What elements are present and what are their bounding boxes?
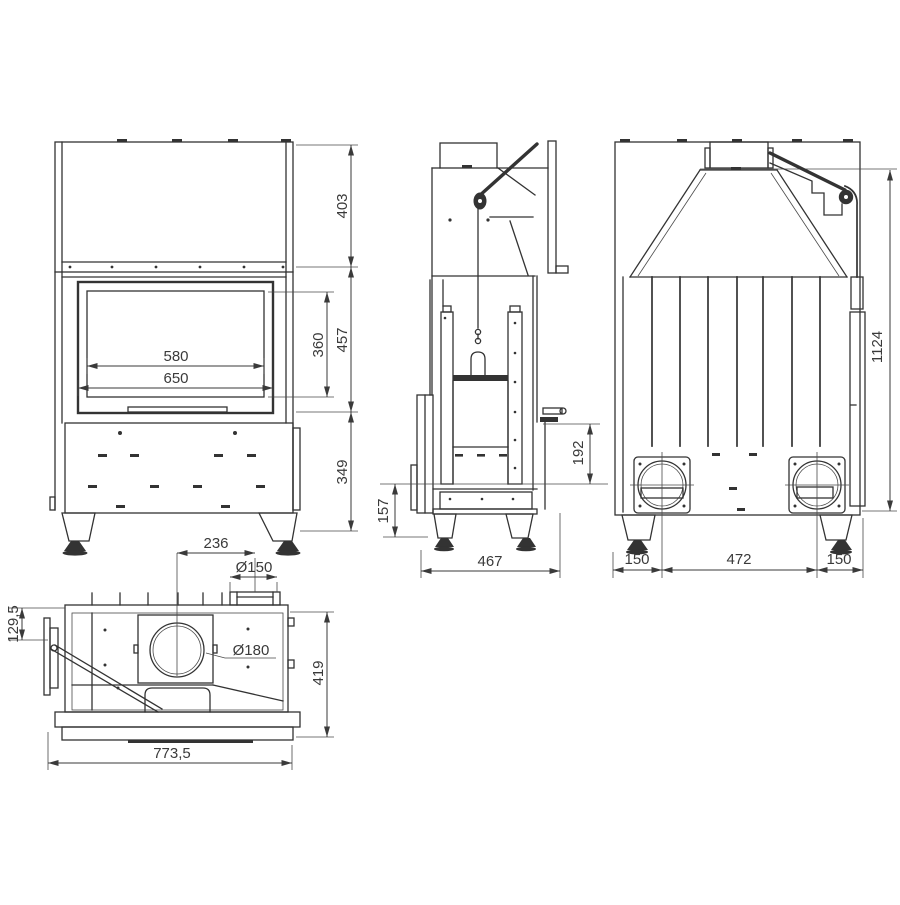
dim-top-intake-diameter: Ø150 [236, 559, 273, 576]
flue-collar-side [440, 143, 497, 168]
handle-bar [128, 407, 227, 412]
front-dimensions: 403 457 349 360 580 650 [78, 145, 358, 531]
side-right-leg [506, 514, 533, 538]
guide-rail-rear [508, 312, 522, 484]
dim-rear-total-height: 1124 [869, 331, 886, 363]
dim-top-flue-diameter: Ø180 [233, 642, 270, 659]
dim-front-hood-height: 403 [334, 193, 351, 218]
side-left-leg [434, 514, 456, 538]
front-frame-column [411, 395, 433, 513]
ash-tray [145, 688, 210, 712]
pulley-arm-rear [770, 153, 857, 277]
dim-front-door-width: 650 [163, 370, 188, 387]
dim-top-flue-offset: 236 [203, 535, 228, 552]
counterweight-hanger [471, 352, 485, 377]
vent-slots [88, 454, 265, 508]
fin-ticks [92, 593, 222, 605]
back-panel [548, 141, 556, 273]
left-leg [62, 513, 95, 541]
sliding-door-side [453, 381, 508, 484]
dim-front-glass-width: 580 [163, 348, 188, 365]
door-lift-mechanism [453, 208, 508, 381]
flue-collar-rear [705, 142, 773, 168]
dim-top-front-ledge: 129,5 [5, 605, 22, 643]
dim-front-base-height: 349 [334, 459, 351, 484]
dim-rear-inlet-spacing: 472 [726, 551, 751, 568]
guide-rail-front [441, 312, 453, 484]
fireplace-technical-drawing: 403 457 349 360 580 650 [0, 0, 900, 900]
technical-drawing-page: 403 457 349 360 580 650 [0, 0, 900, 900]
side-view: 192 157 467 [375, 141, 608, 578]
door-top-bar [453, 375, 508, 381]
heat-fins [623, 277, 820, 512]
dim-front-firebox-height: 457 [334, 327, 351, 352]
counterweight-channel [850, 277, 865, 506]
pulley-arm-side [478, 144, 537, 197]
dim-rear-left-inlet-offset: 150 [624, 551, 649, 568]
dim-top-overall-width: 773,5 [153, 745, 191, 762]
air-duct-top [230, 592, 280, 605]
dim-side-rear-ledge: 192 [570, 440, 587, 465]
hood-trapezoid [630, 167, 847, 277]
rear-legs [622, 515, 852, 555]
right-foot [277, 541, 299, 551]
flue-outlet [134, 615, 217, 683]
front-view: 403 457 349 360 580 650 [50, 139, 358, 556]
top-dimensions: 236 Ø150 Ø180 129,5 419 773,5 [5, 535, 334, 770]
base [50, 423, 300, 513]
dim-front-glass-height: 360 [310, 332, 327, 357]
hood [55, 139, 293, 272]
rear-view: 1124 150 472 150 [613, 139, 897, 578]
front-frame-top [55, 712, 300, 743]
dim-side-depth: 467 [477, 553, 502, 570]
dim-rear-right-inlet-offset: 150 [826, 551, 851, 568]
right-leg [259, 513, 297, 541]
top-view: 236 Ø150 Ø180 129,5 419 773,5 [5, 535, 334, 770]
side-base [380, 484, 608, 551]
left-foot [64, 541, 86, 551]
firebox-front [55, 272, 293, 510]
wall-bracket [556, 266, 568, 273]
dim-side-plinth-height: 157 [375, 498, 392, 523]
lever-bracket [44, 618, 58, 695]
rear-dimensions: 1124 150 472 150 [613, 170, 897, 578]
front-legs [62, 513, 301, 556]
damper-stub [540, 408, 566, 509]
dim-top-depth: 419 [310, 660, 327, 685]
